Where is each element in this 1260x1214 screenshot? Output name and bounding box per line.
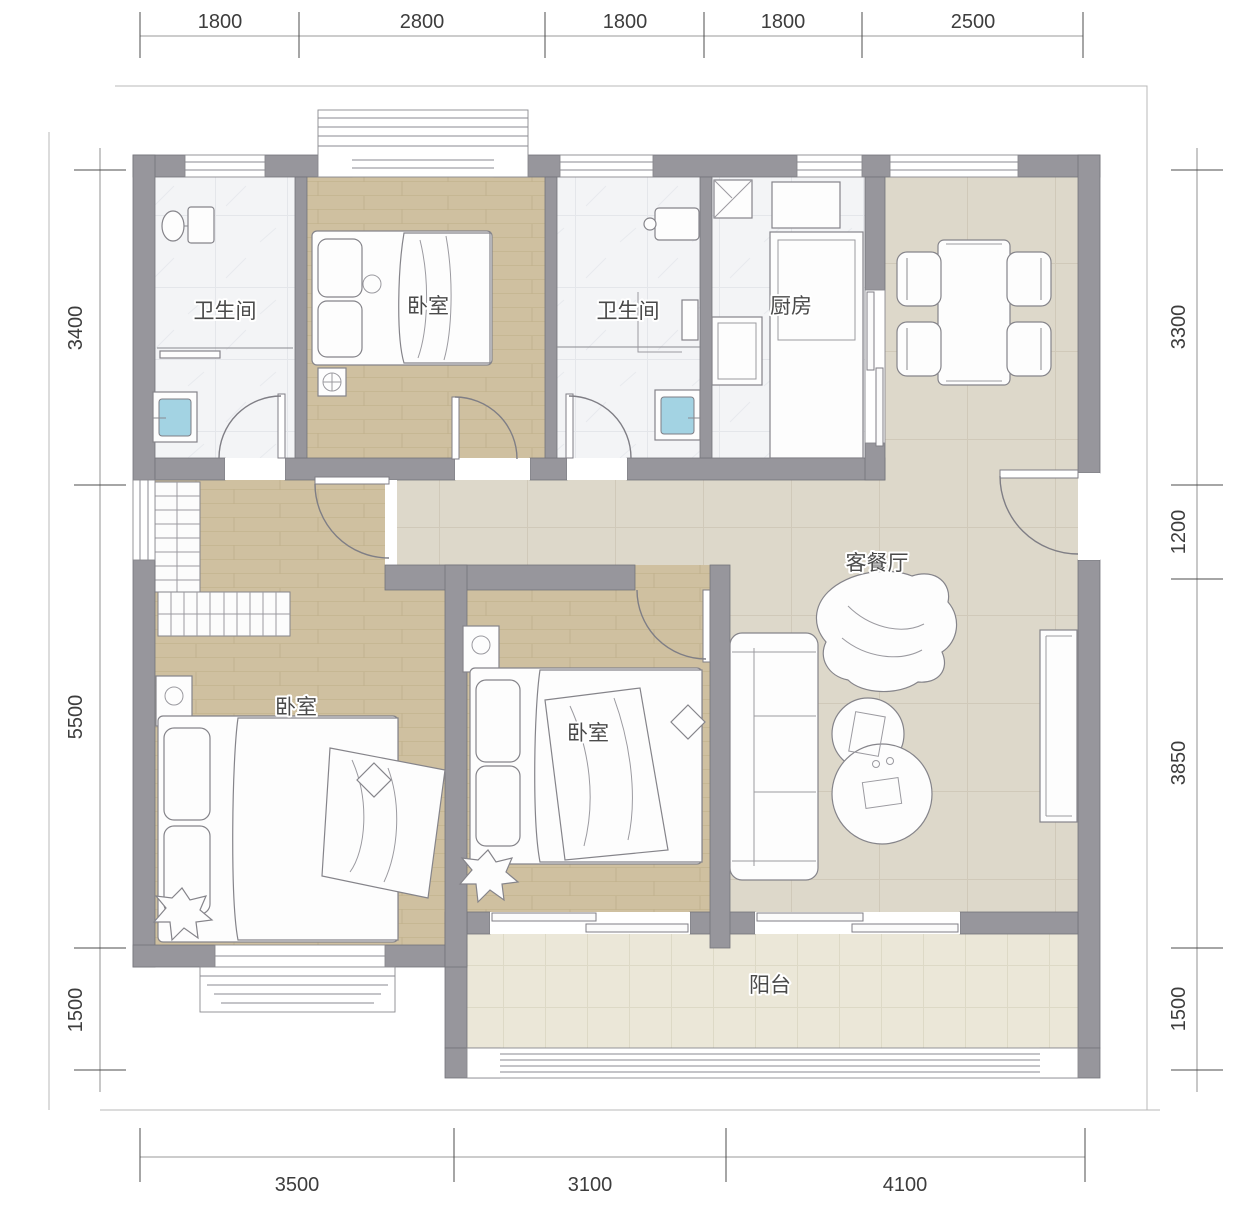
dimension-bottom: 3500 3100 4100: [140, 1128, 1085, 1196]
dim-bottom-1: 3500: [275, 1174, 320, 1196]
wall-segment: [710, 565, 730, 948]
dining-chair: [1007, 322, 1051, 376]
wall-segment: [862, 155, 890, 177]
wall-segment: [133, 945, 215, 967]
dim-bottom-3: 4100: [883, 1174, 928, 1196]
label-kitchen: 厨房: [770, 295, 812, 318]
dining-chair: [1007, 252, 1051, 306]
label-bedroom-3: 卧室: [567, 722, 609, 745]
sofa: [730, 633, 818, 880]
window-top-bathroom-1: [185, 155, 265, 177]
dining-chair: [897, 322, 941, 376]
dim-top-3: 1800: [603, 11, 648, 33]
dim-top-2: 2800: [400, 11, 445, 33]
dim-right-2: 1200: [1168, 510, 1190, 555]
dim-right-4: 1500: [1168, 987, 1190, 1032]
label-bathroom-1: 卫生间: [194, 300, 257, 323]
label-balcony: 阳台: [749, 974, 791, 997]
washing-machine-bathroom-2: [655, 390, 700, 440]
wall-segment: [1078, 155, 1100, 473]
dim-right-1: 3300: [1168, 305, 1190, 350]
toilet-bathroom-1: [162, 207, 214, 243]
kitchen-counter-top: [772, 182, 840, 228]
dim-top-5: 2500: [951, 11, 996, 33]
wall-segment: [865, 443, 885, 480]
sliding-door-bedroom-3-balcony: [490, 912, 690, 934]
dim-bottom-2: 3100: [568, 1174, 613, 1196]
bay-window-bedroom-1: [318, 110, 528, 177]
wall-segment: [530, 458, 567, 480]
floor-plan-drawing: 1800 2800 1800 1800 2500 3500 3100 4100 …: [0, 0, 1260, 1214]
kitchen-counter-right: [770, 232, 863, 458]
duct-shaft-kitchen: [714, 180, 752, 218]
wall-segment: [528, 155, 560, 177]
wall-segment: [960, 912, 1078, 934]
label-living-dining: 客餐厅: [846, 552, 909, 575]
kitchen-counter-left: [712, 317, 762, 385]
wall-segment: [265, 155, 318, 177]
wall-segment: [133, 155, 155, 480]
wall-segment: [1078, 560, 1100, 1048]
dimension-left: 3400 5500 1500: [65, 148, 126, 1092]
wall-segment: [627, 458, 885, 480]
dimension-right: 3300 1200 3850 1500: [1168, 148, 1223, 1092]
dim-right-3: 3850: [1168, 741, 1190, 786]
washing-machine-bathroom-1: [153, 392, 197, 442]
doorway-bathroom-2: [567, 458, 627, 480]
dim-top-4: 1800: [761, 11, 806, 33]
sliding-door-living-balcony: [755, 912, 960, 934]
wall-segment: [155, 458, 225, 480]
window-top-kitchen: [797, 155, 862, 177]
doorway-bedroom-2: [385, 480, 397, 558]
dim-left-2: 5500: [65, 695, 87, 740]
wall-segment: [653, 155, 797, 177]
bed-bedroom-3: [470, 668, 702, 864]
wall-segment: [700, 177, 712, 458]
dimension-top: 1800 2800 1800 1800 2500: [140, 11, 1083, 58]
label-bedroom-2: 卧室: [275, 696, 317, 719]
floor-plan-page: 1800 2800 1800 1800 2500 3500 3100 4100 …: [0, 0, 1260, 1214]
doorway-bathroom-1: [225, 458, 285, 480]
wall-segment: [385, 565, 635, 590]
wall-segment: [545, 177, 557, 458]
bed-bedroom-1: [312, 231, 492, 365]
wall-segment: [467, 912, 490, 934]
dim-top-1: 1800: [198, 11, 243, 33]
doorway-entry: [1078, 473, 1100, 560]
label-bedroom-1: 卧室: [407, 295, 449, 318]
label-bathroom-2: 卫生间: [597, 300, 660, 323]
dining-chair: [897, 252, 941, 306]
wall-segment: [295, 177, 307, 458]
kitchen-sliding-door: [865, 290, 885, 446]
dining-table: [938, 240, 1010, 385]
doorway-bedroom-1: [455, 458, 530, 480]
cabinet-bedroom-3: [463, 626, 499, 672]
tv-cabinet: [1040, 630, 1077, 822]
window-top-dining: [890, 155, 1018, 177]
balcony-rail-window: [467, 1048, 1078, 1078]
wall-segment: [133, 560, 155, 967]
wall-segment: [865, 177, 885, 290]
wall-segment: [445, 565, 467, 967]
dim-left-3: 1500: [65, 988, 87, 1033]
window-left-stairs: [133, 480, 155, 560]
bay-window-bedroom-2: [200, 945, 395, 1012]
rug-sketch: [816, 571, 956, 691]
dim-left-1: 3400: [65, 306, 87, 351]
floor-drain-bedroom-1: [318, 368, 346, 396]
window-top-bathroom-2: [560, 155, 653, 177]
